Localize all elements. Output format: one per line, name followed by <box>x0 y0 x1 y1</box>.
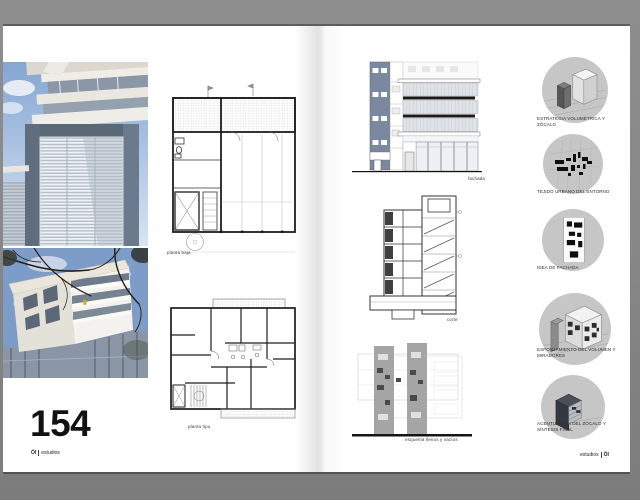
step-circle-2 <box>543 134 603 194</box>
footer-divider <box>38 450 39 456</box>
drawing-caption-scheme: esquema llenos y vacíos <box>405 437 458 442</box>
step-caption-4: ESPONJAMIENTO DEL VOLUMEN Y MIRADORES <box>537 347 617 358</box>
plan-caption-ground: planta baja <box>167 250 191 255</box>
step-circle-3 <box>542 209 604 271</box>
facade-idea-icon <box>542 209 604 271</box>
facade-looking-up-photo <box>3 62 148 246</box>
drawing-caption-section: corte <box>447 317 458 322</box>
footer-label: estudios <box>580 452 599 458</box>
floorplan-ground <box>165 82 303 254</box>
drawing-caption-elevation: fachada <box>468 176 485 181</box>
left-footer: ÖI estudios <box>31 450 60 456</box>
footer-label: estudios <box>41 450 60 456</box>
step-caption-3: IDEA DE FACHADA <box>537 265 617 271</box>
publisher-logo: ÖI <box>31 450 36 456</box>
urban-fabric-icon <box>543 134 603 194</box>
step-caption-2: TEJIDO URBANO DEL ENTORNO <box>537 189 617 195</box>
book-spread: planta baja planta tipo 154 <box>3 24 630 474</box>
right-footer: estudios ÖI <box>580 452 609 458</box>
viewer-background: planta baja planta tipo 154 <box>0 0 640 500</box>
floorplan-typical <box>165 297 303 429</box>
elevation-drawing <box>350 52 495 178</box>
step-circle-1 <box>542 57 608 123</box>
page-number: 154 <box>30 405 90 442</box>
step-caption-5: ACENTUACIÓN DEL ZÓCALO Y SÍNTESIS FINAL <box>537 421 617 432</box>
solids-voids-diagram <box>352 340 474 438</box>
section-drawing <box>362 192 467 322</box>
step-caption-1: ESTRATEGIA VOLUMÉTRICA Y ZÓCALO <box>537 116 617 127</box>
volume-plinth-icon <box>542 57 608 123</box>
publisher-logo: ÖI <box>604 452 609 458</box>
plan-caption-typical: planta tipo <box>188 424 210 429</box>
footer-divider <box>601 452 602 458</box>
building-corner-photo <box>3 248 148 378</box>
